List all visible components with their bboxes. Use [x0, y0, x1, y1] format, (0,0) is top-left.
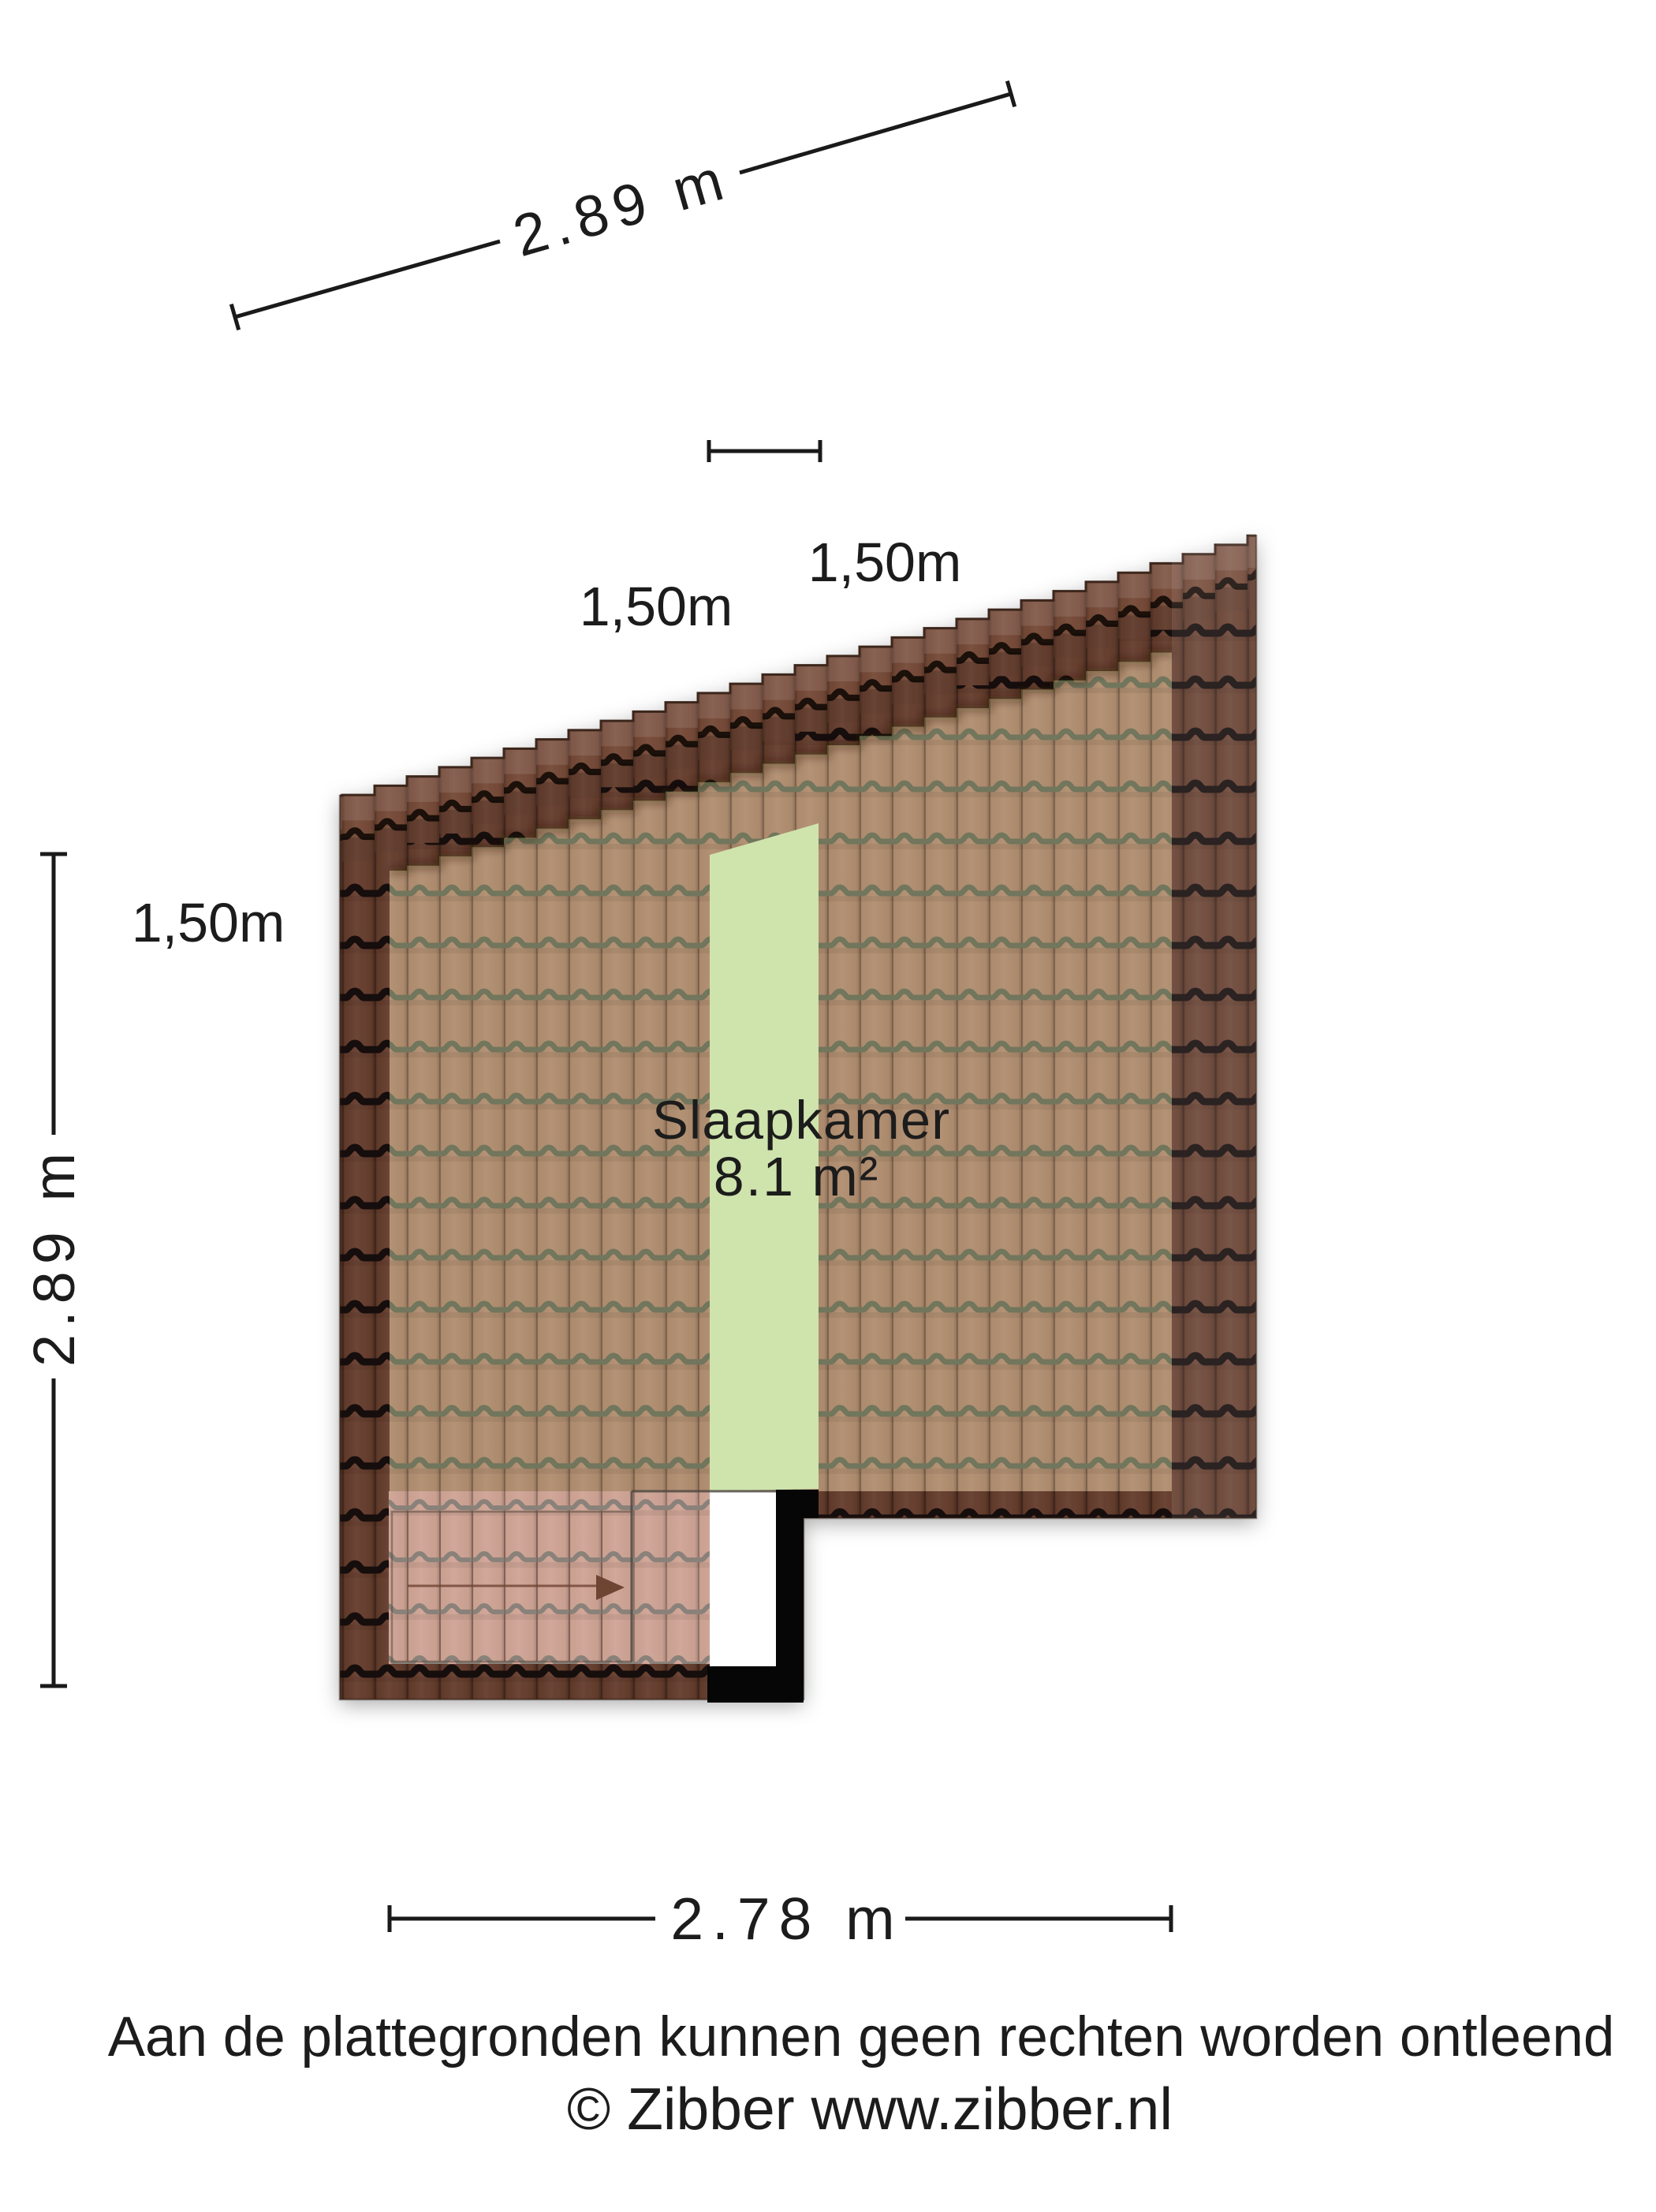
svg-text:2.89 m: 2.89 m [506, 145, 737, 269]
svg-text:© Zibber www.zibber.nl: © Zibber www.zibber.nl [567, 2076, 1173, 2142]
svg-text:2.89 m: 2.89 m [21, 1146, 87, 1367]
svg-text:Aan de plattegronden kunnen ge: Aan de plattegronden kunnen geen rechten… [108, 2006, 1615, 2068]
svg-text:8.1 m²: 8.1 m² [714, 1146, 879, 1207]
svg-text:Slaapkamer: Slaapkamer [652, 1090, 950, 1151]
svg-text:1,50m: 1,50m [808, 532, 962, 593]
svg-text:1,50m: 1,50m [580, 576, 733, 637]
svg-text:2.78 m: 2.78 m [670, 1886, 903, 1952]
svg-text:1,50m: 1,50m [132, 892, 285, 953]
